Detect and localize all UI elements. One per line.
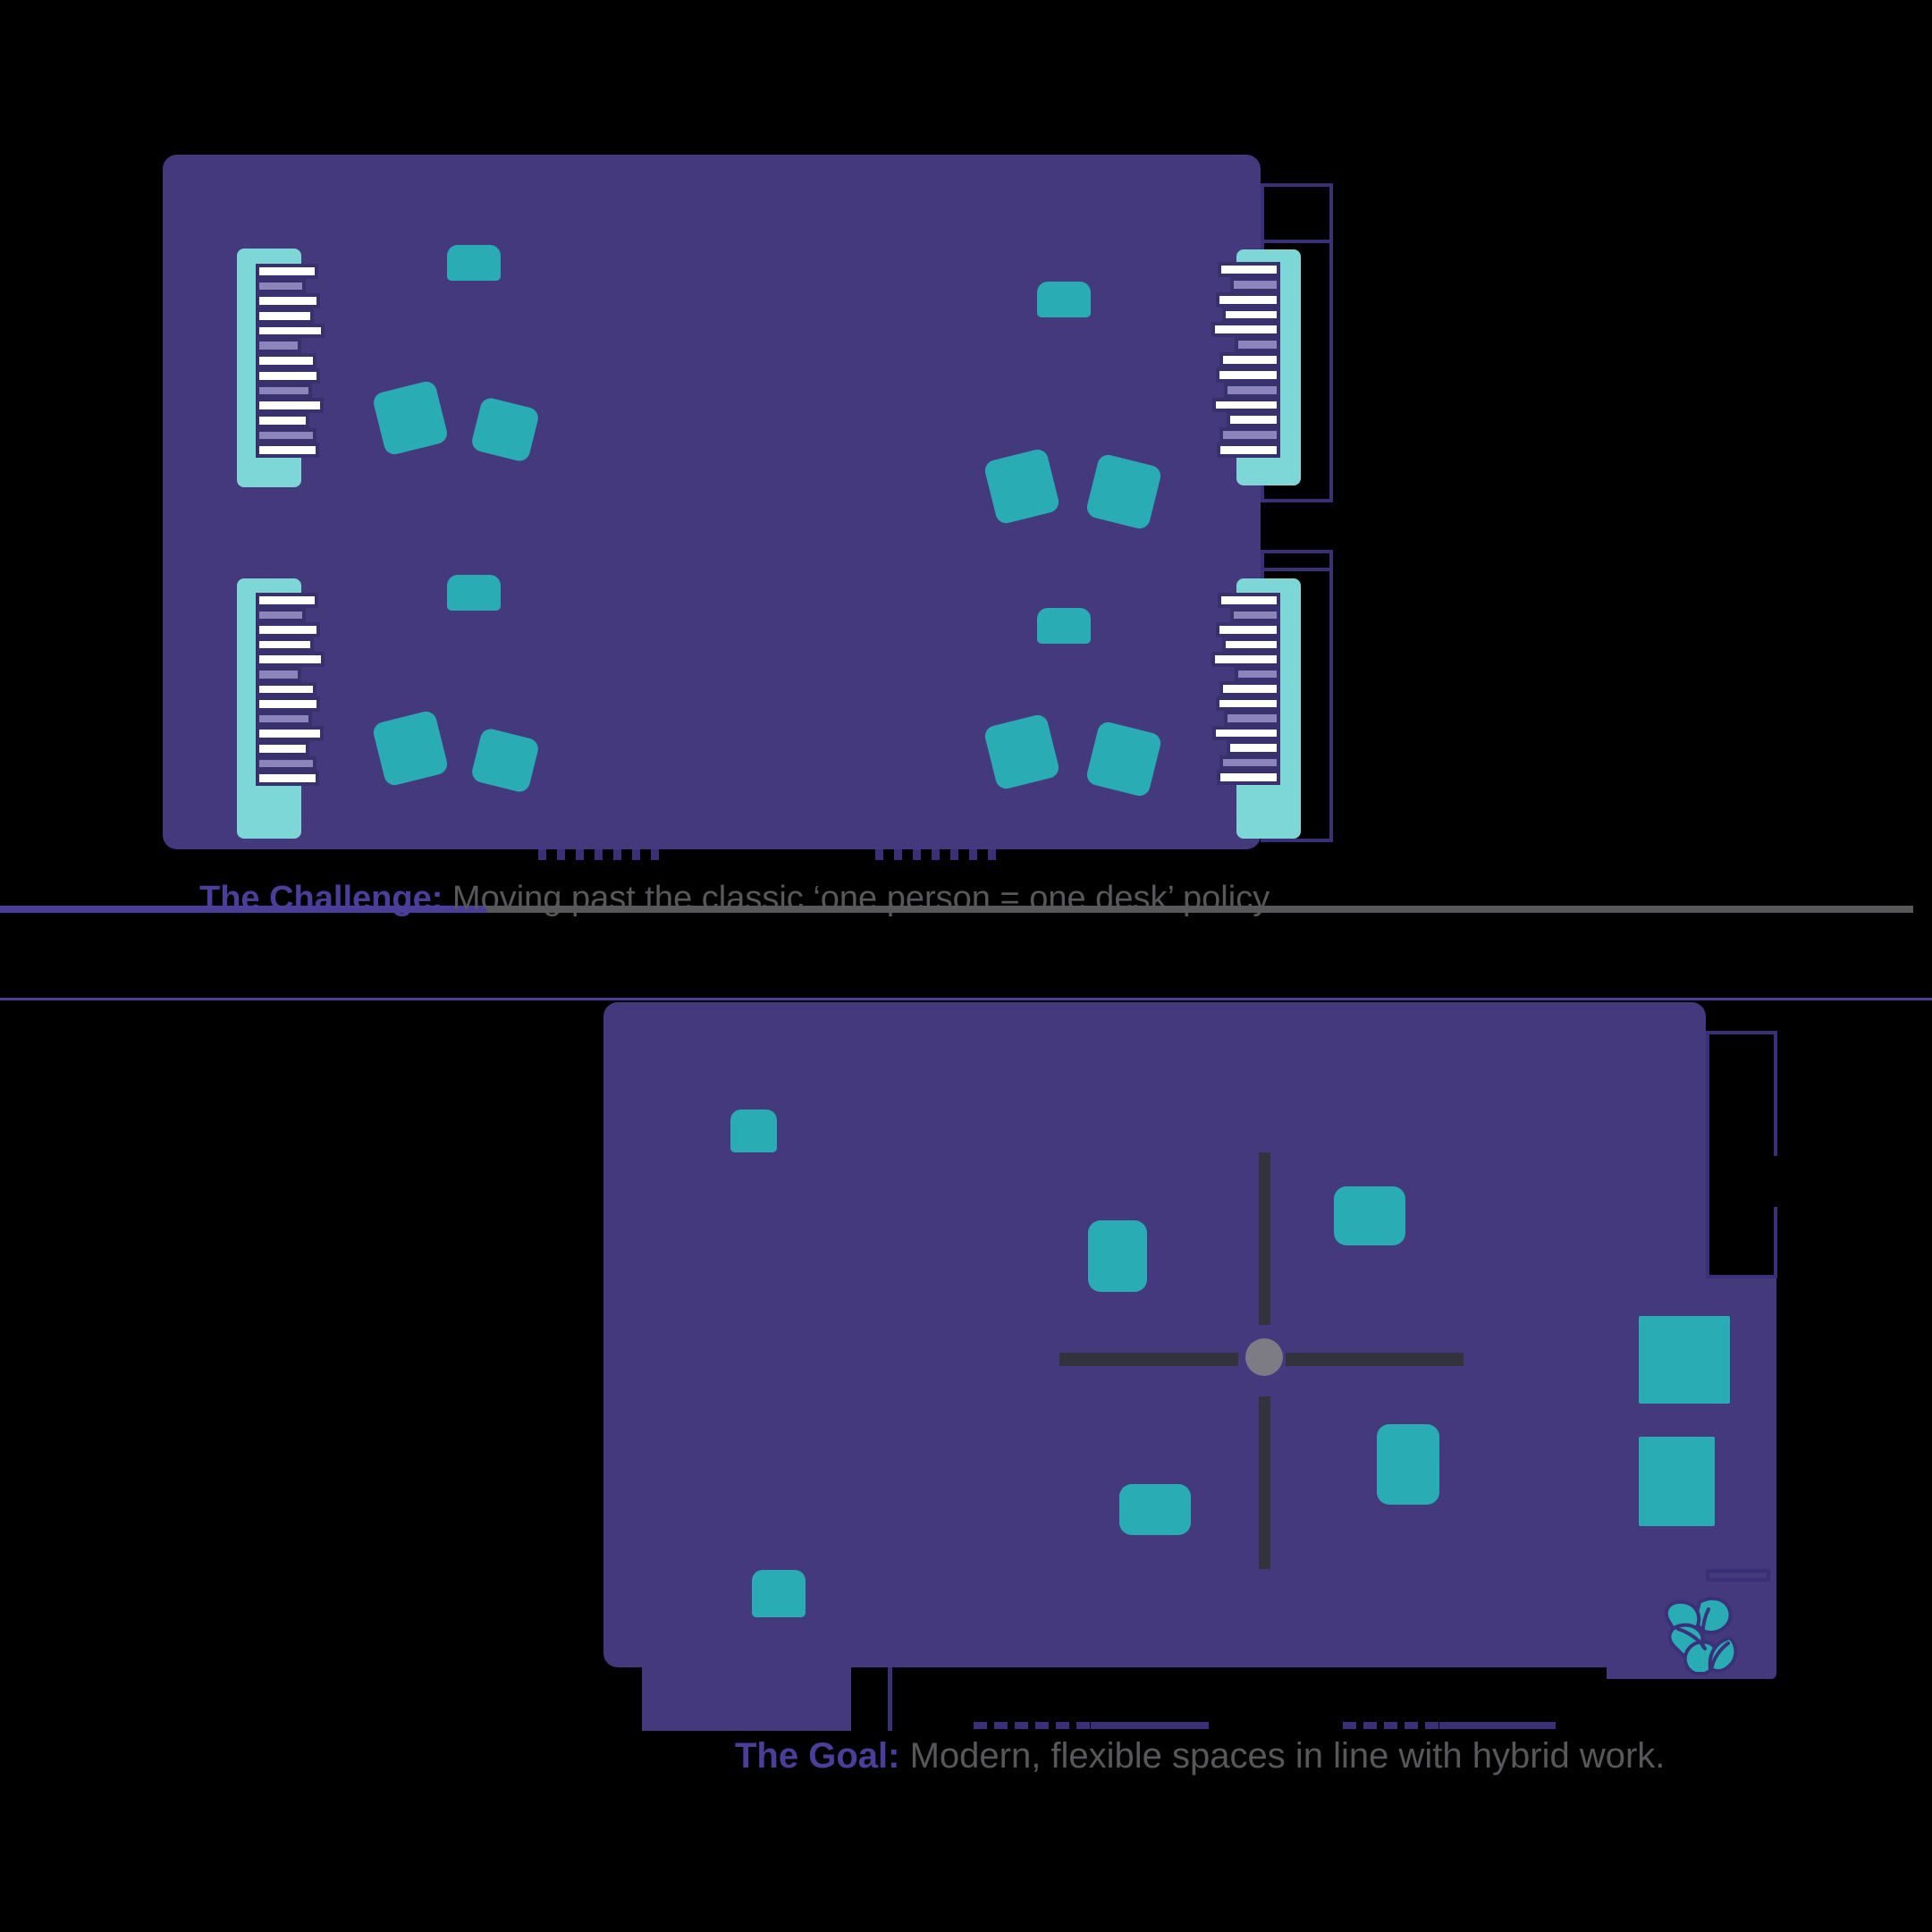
bottom-wall-segment: [1439, 1722, 1556, 1729]
shelf-bar: [256, 443, 319, 458]
shelf-bar: [256, 413, 309, 428]
bookshelf: [1225, 593, 1280, 785]
shelf-bar: [256, 712, 312, 727]
trillium-logo-icon: [1657, 1591, 1750, 1677]
shelf-bar: [1235, 667, 1280, 682]
shelf-bar: [256, 324, 325, 339]
shelf-bar: [256, 384, 312, 399]
shelf-bar: [1224, 383, 1280, 398]
flex-divider-horizontal: [1286, 1353, 1464, 1366]
caption-goal: The Goal: Modern, flexible spaces in lin…: [735, 1736, 1665, 1776]
bookshelf: [1225, 262, 1280, 458]
annex-room-outline: [1706, 1031, 1777, 1278]
annex-door-gap: [1770, 1156, 1779, 1207]
chair: [447, 575, 501, 611]
shelf-bar: [1222, 308, 1280, 323]
chair: [447, 245, 501, 281]
caption-goal-text: Modern, flexible spaces in line with hyb…: [899, 1736, 1665, 1776]
shelf-bar: [256, 696, 320, 712]
shelf-bar: [1230, 277, 1280, 292]
shelf-bar: [1222, 637, 1280, 653]
shelf-bar: [1217, 770, 1280, 785]
caption-challenge: The Challenge: Moving past the classic ‘…: [199, 880, 1270, 918]
shelf-bar: [256, 622, 320, 637]
annex-divider: [1264, 568, 1329, 571]
section-divider-line: [0, 998, 1932, 1000]
shelf-bar: [1212, 398, 1280, 413]
shelf-bar: [256, 682, 316, 697]
shelf-bar: [1216, 367, 1280, 383]
shelf-bar: [256, 608, 306, 623]
shelf-bar: [256, 726, 324, 741]
shelf-bar: [256, 741, 309, 756]
floor-area: [603, 1002, 1706, 1667]
shelf-bar: [256, 652, 325, 667]
shelf-bar: [1211, 652, 1280, 667]
chair: [1037, 282, 1091, 317]
shelf-bar: [256, 771, 319, 786]
flex-seat: [1088, 1220, 1147, 1292]
shelf-bar: [1216, 622, 1280, 637]
shelf-bar: [1224, 711, 1280, 726]
entry-vestibule: [642, 1667, 851, 1731]
shelf-bar: [256, 338, 301, 353]
bookshelf: [256, 593, 311, 786]
infographic-canvas: The Challenge: Moving past the classic ‘…: [0, 0, 1932, 1932]
shelf-bar: [1227, 412, 1280, 427]
flex-seat: [1377, 1424, 1439, 1505]
chair: [1037, 608, 1091, 644]
shelf-bar: [256, 293, 320, 308]
door-hatch-marks: [538, 849, 663, 860]
shelf-bar: [256, 756, 316, 772]
shelf-bar: [1227, 740, 1280, 755]
shelf-bar: [1216, 292, 1280, 308]
shelf-bar: [256, 428, 316, 443]
flex-divider-vertical: [1259, 1152, 1270, 1325]
flex-divider-horizontal: [1059, 1353, 1238, 1366]
shelf-bar: [256, 398, 324, 413]
caption-goal-label: The Goal:: [735, 1736, 899, 1776]
caption-challenge-label: The Challenge:: [199, 880, 443, 917]
divider-hub: [1245, 1338, 1283, 1376]
shelf-bar: [256, 264, 318, 279]
shelf-bar: [256, 593, 318, 608]
closet-outline: [1706, 1569, 1770, 1582]
shelf-bar: [256, 368, 320, 384]
storage-unit: [1639, 1316, 1730, 1404]
shelf-bar: [256, 353, 316, 368]
shelf-bar: [1219, 681, 1280, 696]
shelf-bar: [1218, 262, 1280, 277]
flex-seat: [1334, 1186, 1405, 1245]
shelf-bar: [1230, 608, 1280, 623]
flex-seat: [1119, 1484, 1191, 1535]
shelf-bar: [1218, 593, 1280, 608]
shelf-bar: [1219, 427, 1280, 443]
shelf-bar: [256, 667, 301, 682]
flex-divider-vertical: [1259, 1396, 1270, 1569]
shelf-bar: [1216, 696, 1280, 712]
caption-challenge-text: Moving past the classic ‘one person = on…: [443, 880, 1270, 917]
shelf-bar: [256, 308, 314, 324]
shelf-bar: [1211, 322, 1280, 337]
shelf-bar: [1219, 755, 1280, 771]
shelf-bar: [1217, 443, 1280, 458]
shelf-bar: [256, 279, 306, 294]
flex-seat: [730, 1109, 777, 1152]
storage-unit: [1639, 1437, 1715, 1526]
bottom-wall-segment: [1091, 1722, 1209, 1729]
shelf-bar: [1219, 352, 1280, 367]
annex-divider: [1264, 240, 1329, 243]
shelf-bar: [256, 637, 314, 653]
flex-seat: [752, 1570, 806, 1617]
door-hatch-marks: [875, 849, 1000, 860]
entry-wall: [888, 1667, 892, 1731]
shelf-bar: [1212, 726, 1280, 741]
door-swing-dashes: [1343, 1722, 1439, 1729]
door-swing-dashes: [974, 1722, 1091, 1729]
bookshelf: [256, 264, 311, 458]
shelf-bar: [1235, 337, 1280, 352]
